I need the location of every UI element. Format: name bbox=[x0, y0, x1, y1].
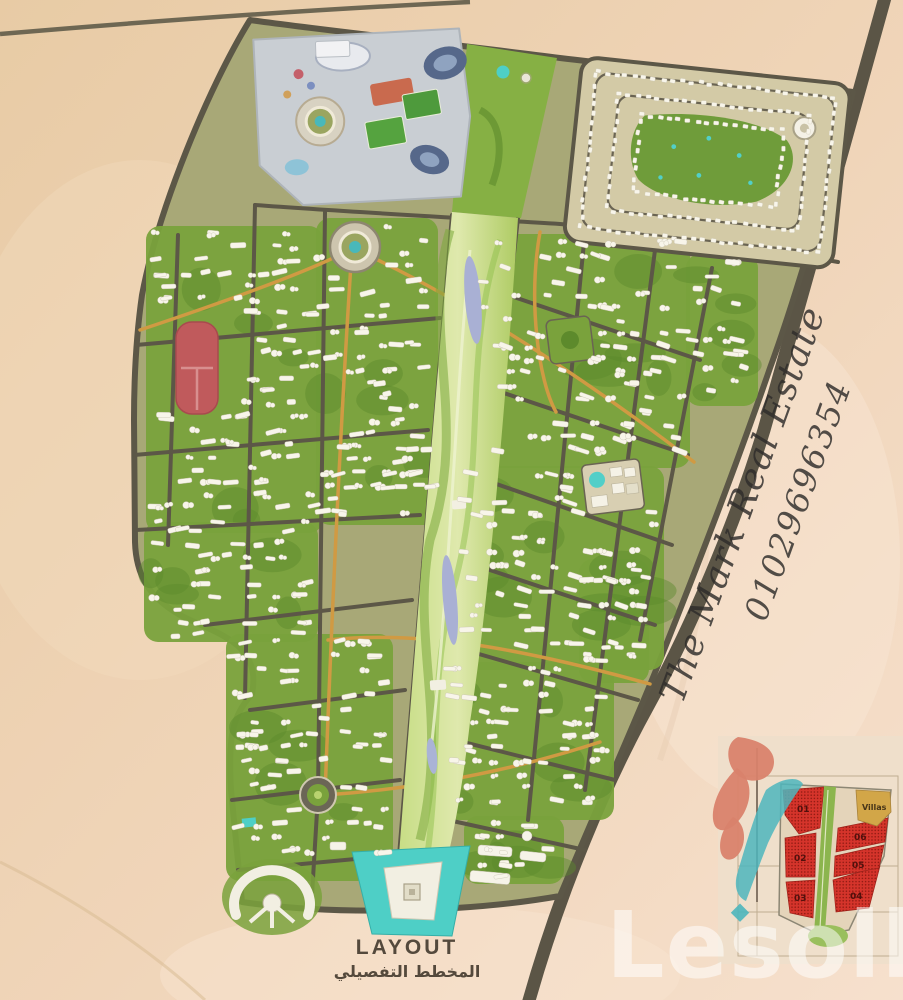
inset-villas-label: Villas bbox=[862, 803, 887, 812]
inset-south-green bbox=[808, 925, 848, 947]
resort-lagoon bbox=[352, 846, 470, 936]
masterplan-svg: 01 02 03 04 05 06 Villas bbox=[0, 0, 903, 1000]
layout-caption-en: LAYOUT bbox=[262, 936, 552, 960]
inset-zone-01-label: 01 bbox=[797, 805, 810, 815]
fountain-pool bbox=[497, 66, 510, 79]
inset-zone-06-label: 06 bbox=[854, 833, 867, 843]
inset-map: 01 02 03 04 05 06 Villas bbox=[713, 736, 903, 964]
commercial-center bbox=[581, 459, 645, 516]
central-plaza bbox=[330, 222, 380, 272]
park-square bbox=[545, 315, 594, 364]
layout-caption-ar: المخطط التفصيلي bbox=[262, 962, 552, 981]
layout-caption: LAYOUT المخطط التفصيلي bbox=[262, 936, 552, 981]
inset-zone-03-label: 03 bbox=[794, 894, 807, 904]
villa-compound bbox=[563, 57, 851, 269]
fountain-plaza bbox=[521, 73, 531, 83]
roundabout bbox=[300, 777, 336, 813]
inset-zone-02-label: 02 bbox=[794, 854, 807, 864]
masterplan-image: 01 02 03 04 05 06 Villas The Mark Real E… bbox=[0, 0, 903, 1000]
football-field-2 bbox=[365, 116, 407, 149]
inset-zone-05-label: 05 bbox=[852, 861, 865, 871]
sports-complex bbox=[253, 28, 475, 206]
inset-zone-04-label: 04 bbox=[850, 892, 863, 902]
